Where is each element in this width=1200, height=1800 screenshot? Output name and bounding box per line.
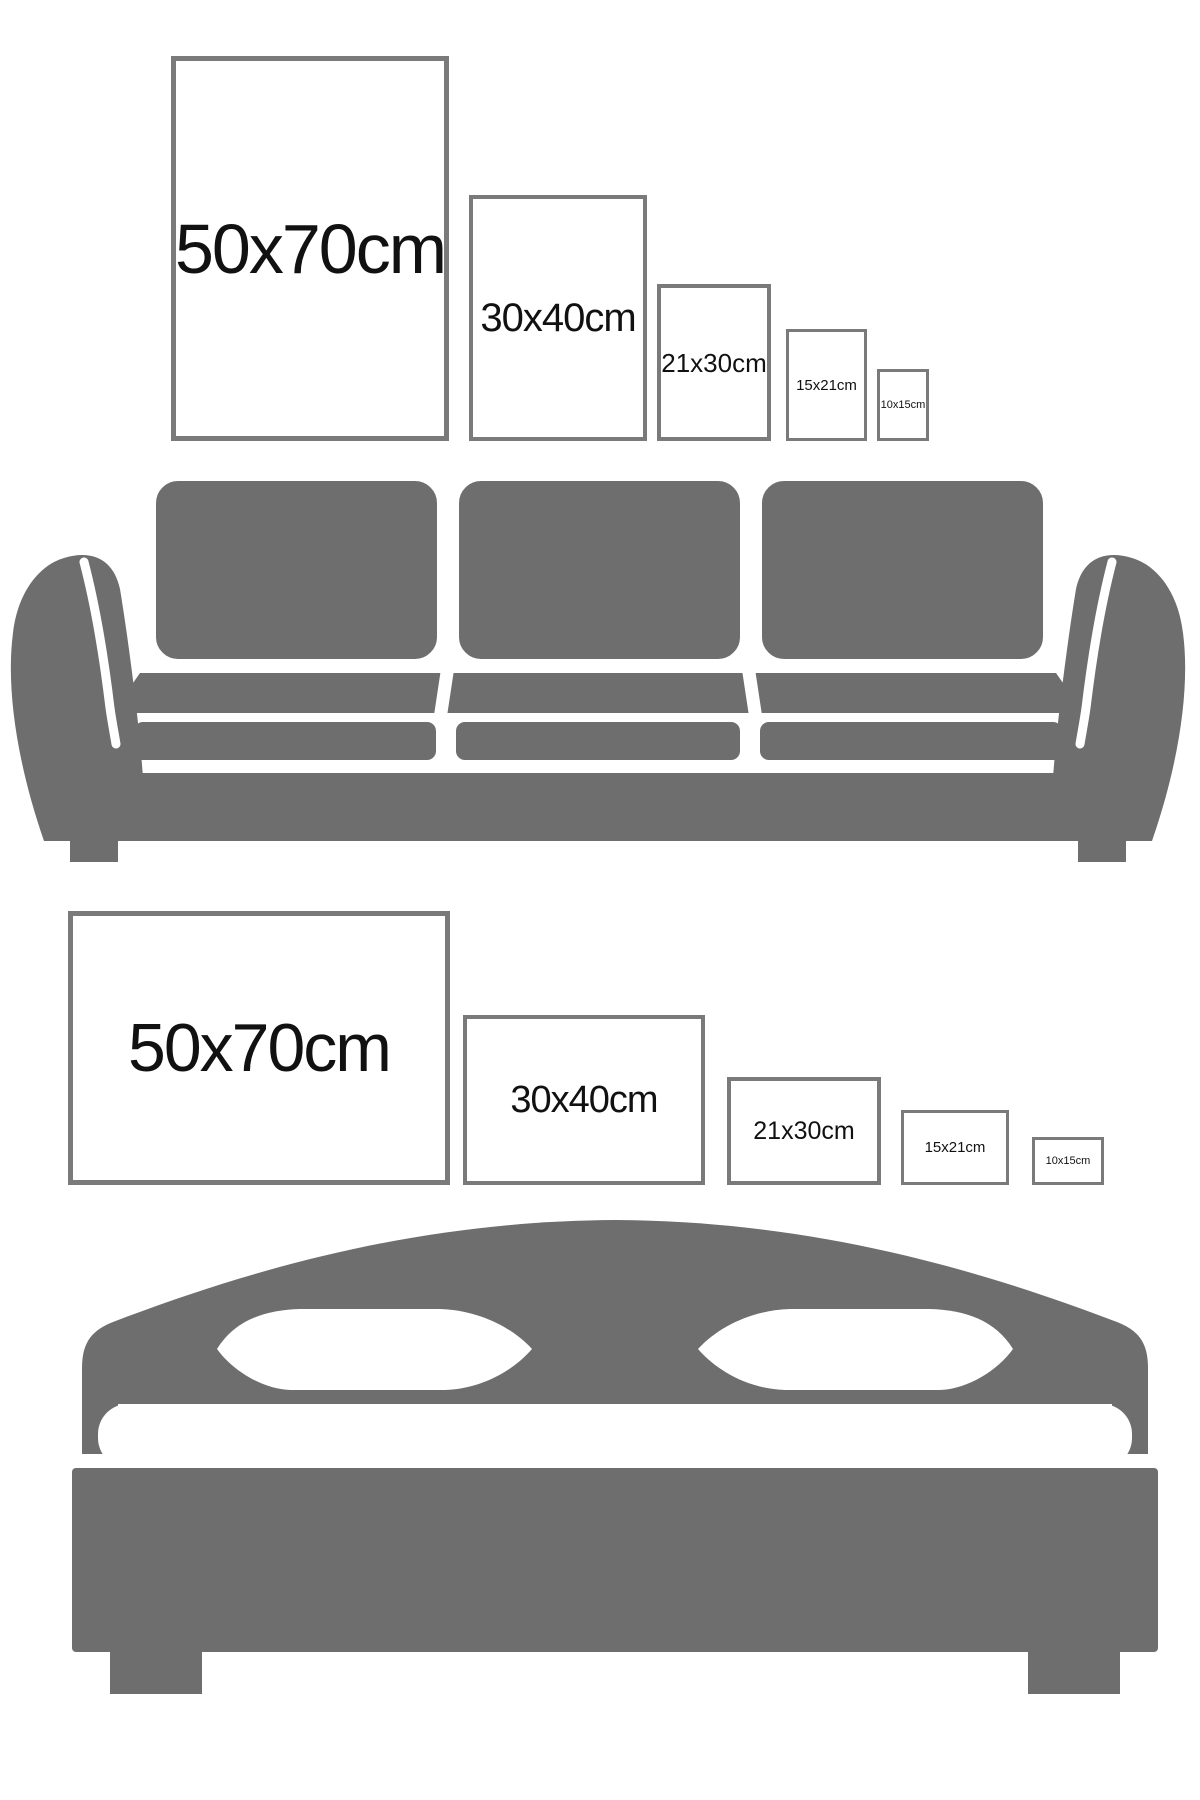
sofa-arm-left xyxy=(11,555,149,841)
sofa-leg xyxy=(70,841,118,862)
bed-base xyxy=(72,1468,1158,1652)
frame-size-label: 10x15cm xyxy=(881,400,926,411)
frame-size-label: 21x30cm xyxy=(753,1119,854,1144)
frame-portrait-21x30: 21x30cm xyxy=(657,284,771,441)
sofa-seat-deck xyxy=(112,673,1084,713)
frame-portrait-15x21: 15x21cm xyxy=(786,329,867,441)
frame-portrait-30x40: 30x40cm xyxy=(469,195,647,441)
frame-portrait-50x70: 50x70cm xyxy=(171,56,449,441)
frame-landscape-15x21: 15x21cm xyxy=(901,1110,1009,1185)
size-guide-infographic: 50x70cm 30x40cm 21x30cm 15x21cm 10x15cm … xyxy=(0,0,1200,1800)
bed-icon xyxy=(72,1220,1158,1694)
sofa-icon xyxy=(11,477,1185,862)
sofa-seat-cushion xyxy=(130,718,440,764)
sofa-seat-cushion xyxy=(452,718,744,764)
bed-leg xyxy=(110,1652,202,1694)
bed-headboard xyxy=(82,1220,1148,1404)
sofa-base xyxy=(48,773,1148,841)
frame-landscape-50x70: 50x70cm xyxy=(68,911,450,1185)
sofa-seat-divider xyxy=(440,666,448,719)
sofa-arm-right xyxy=(1047,555,1185,841)
bed-mattress xyxy=(98,1404,1132,1468)
frame-size-label: 21x30cm xyxy=(661,350,767,376)
bed-pillow-right xyxy=(698,1309,1013,1390)
sofa-back-cushion xyxy=(152,477,441,663)
frame-size-label: 30x40cm xyxy=(510,1081,657,1119)
sofa-seat-divider xyxy=(748,666,756,719)
bed-leg xyxy=(1028,1652,1120,1694)
frame-size-label: 50x70cm xyxy=(128,1014,390,1082)
frame-landscape-30x40: 30x40cm xyxy=(463,1015,705,1185)
frame-landscape-21x30: 21x30cm xyxy=(727,1077,881,1185)
frame-size-label: 10x15cm xyxy=(1046,1156,1091,1167)
frame-size-label: 15x21cm xyxy=(796,378,857,393)
frame-size-label: 15x21cm xyxy=(925,1140,986,1155)
sofa-back-cushion xyxy=(455,477,744,663)
frame-size-label: 30x40cm xyxy=(480,298,635,338)
sofa-leg xyxy=(1078,841,1126,862)
frame-portrait-10x15: 10x15cm xyxy=(877,369,929,441)
bed-pillow-left xyxy=(217,1309,532,1390)
frame-size-label: 50x70cm xyxy=(175,214,445,284)
sofa-seat-cushion xyxy=(756,718,1066,764)
sofa-back-cushion xyxy=(758,477,1047,663)
frame-landscape-10x15: 10x15cm xyxy=(1032,1137,1104,1185)
